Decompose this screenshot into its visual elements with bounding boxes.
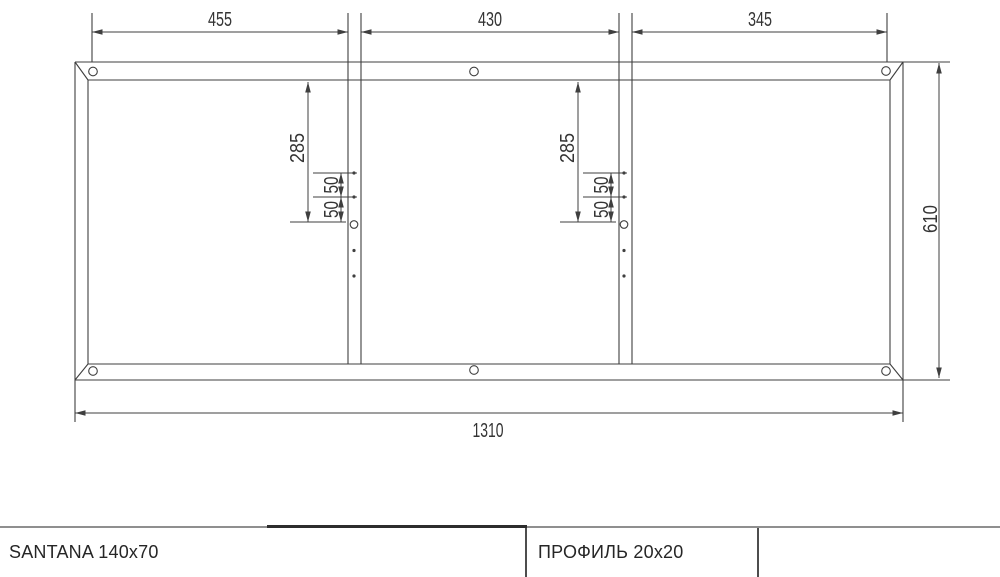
mounting-hole [470, 67, 479, 76]
cross-members-and-extension-lines [75, 13, 903, 422]
dim-label-345: 345 [748, 9, 772, 31]
hole-dot [622, 274, 625, 277]
frame-outline [75, 62, 950, 380]
mounting-hole [89, 67, 98, 76]
dim-label-285-left: 285 [287, 133, 309, 163]
mounting-hole [882, 67, 891, 76]
dimension-lines [75, 32, 939, 413]
hole-dot [352, 274, 355, 277]
dim-label-285-right: 285 [557, 133, 579, 163]
cross-member-holes [350, 171, 628, 277]
dim-label-455: 455 [208, 9, 232, 31]
hole-dot [352, 171, 355, 174]
hole-dot [622, 249, 625, 252]
dim-label-50-left-upper: 50 [321, 177, 343, 194]
hole-dot [352, 195, 355, 198]
dim-label-430: 430 [478, 9, 502, 31]
rail-mounting-holes [89, 67, 891, 376]
empty-cell [759, 528, 1000, 577]
hole-dot [622, 171, 625, 174]
dim-label-50-right-upper: 50 [591, 177, 613, 194]
model-label: SANTANA 140x70 [9, 542, 159, 563]
dim-label-1310: 1310 [473, 420, 504, 442]
mounting-hole [89, 367, 98, 376]
frame-assembly-drawing: 455 430 345 1310 610 285 285 50 50 50 50 [0, 0, 1000, 500]
dim-label-50-left-lower: 50 [321, 201, 343, 218]
profile-label: ПРОФИЛЬ 20x20 [538, 542, 683, 563]
model-cell: SANTANA 140x70 [0, 528, 534, 577]
cross-member-hole [350, 221, 358, 229]
profile-cell: ПРОФИЛЬ 20x20 [527, 528, 768, 577]
technical-drawing-page: 455 430 345 1310 610 285 285 50 50 50 50… [0, 0, 1000, 577]
mounting-hole [882, 367, 891, 376]
cross-member-hole [620, 221, 628, 229]
dim-label-610: 610 [920, 205, 942, 233]
hole-dot [352, 249, 355, 252]
mounting-hole [470, 366, 479, 375]
hole-dot [622, 195, 625, 198]
title-block: SANTANA 140x70 ПРОФИЛЬ 20x20 [0, 526, 1000, 577]
dim-label-50-right-lower: 50 [591, 201, 613, 218]
